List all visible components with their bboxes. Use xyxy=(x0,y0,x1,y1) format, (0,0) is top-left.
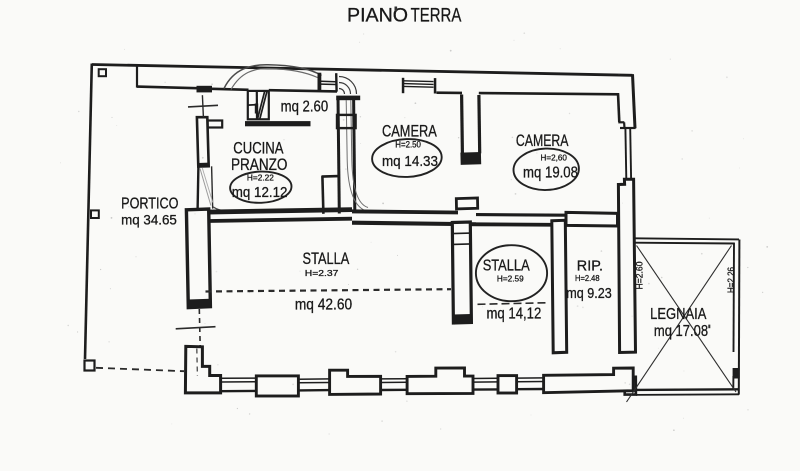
svg-text:mq 42.60: mq 42.60 xyxy=(295,297,353,314)
svg-text:mq 17.08: mq 17.08 xyxy=(654,323,708,340)
svg-text:PIANO: PIANO xyxy=(347,5,408,27)
svg-text:LEGNAIA: LEGNAIA xyxy=(650,306,707,323)
svg-text:TERRA: TERRA xyxy=(411,5,462,27)
svg-text:H=2.37: H=2.37 xyxy=(305,268,339,278)
svg-text:mq 19.08: mq 19.08 xyxy=(523,165,578,182)
svg-text:mq 9.23: mq 9.23 xyxy=(566,285,612,302)
svg-text:RIP.: RIP. xyxy=(577,258,603,274)
svg-text:H=2.50: H=2.50 xyxy=(395,140,421,150)
svg-text:mq 14,12: mq 14,12 xyxy=(486,306,541,323)
svg-text:mq 14.33: mq 14.33 xyxy=(382,153,438,170)
svg-text:STALLA: STALLA xyxy=(303,250,350,268)
svg-text:H=2.60: H=2.60 xyxy=(635,262,645,290)
svg-text:PORTICO: PORTICO xyxy=(121,196,178,213)
svg-text:H=2.48: H=2.48 xyxy=(575,274,600,283)
svg-text:mq 34.65: mq 34.65 xyxy=(121,213,177,228)
svg-text:CUCINA: CUCINA xyxy=(233,139,283,157)
svg-text:mq 12.12: mq 12.12 xyxy=(232,185,288,201)
svg-text:H=2.59: H=2.59 xyxy=(497,273,524,283)
svg-text:H=2,60: H=2,60 xyxy=(541,152,568,162)
svg-text:CAMERA: CAMERA xyxy=(516,132,569,150)
svg-text:mq 2.60: mq 2.60 xyxy=(281,99,329,116)
svg-text:CAMERA: CAMERA xyxy=(382,123,437,141)
svg-text:STALLA: STALLA xyxy=(483,258,530,275)
svg-text:H=2.22: H=2.22 xyxy=(247,172,274,182)
svg-text:H=2.26: H=2.26 xyxy=(726,267,736,293)
